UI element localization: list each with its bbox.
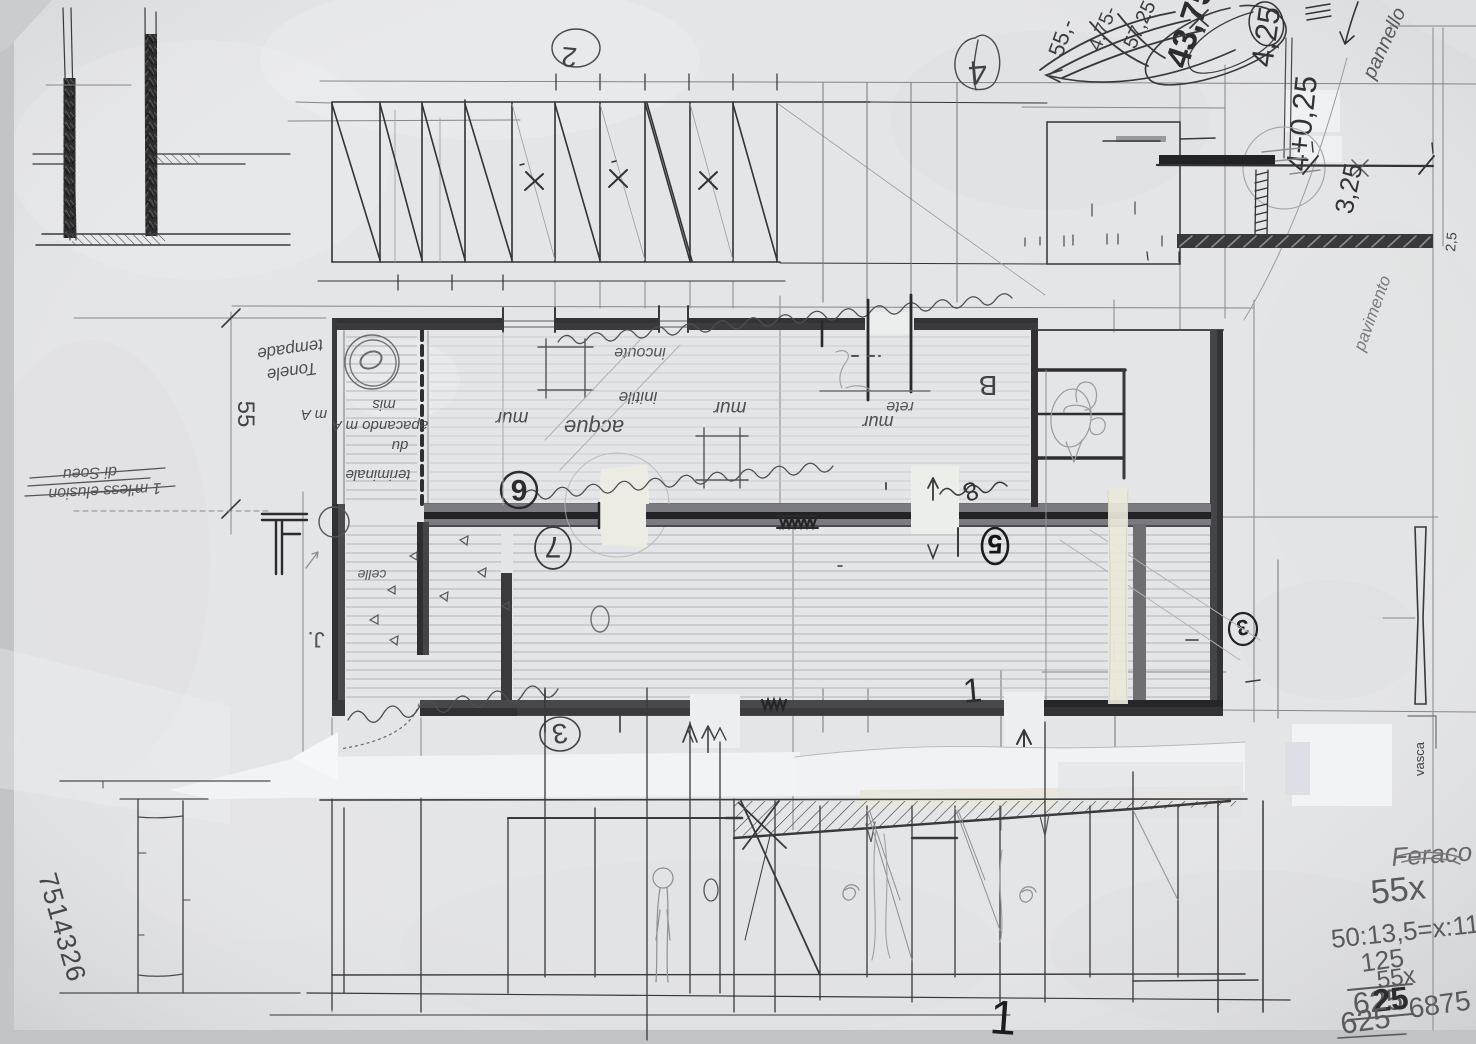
svg-text:6: 6: [511, 473, 528, 506]
svg-text:55: 55: [232, 401, 259, 428]
svg-text:acque: acque: [564, 415, 624, 440]
svg-text:celle: celle: [357, 567, 386, 583]
svg-text:mur: mur: [713, 397, 746, 418]
svg-text:4: 4: [967, 52, 989, 92]
svg-text:B: B: [979, 370, 998, 401]
svg-text:2: 2: [560, 41, 578, 73]
svg-text:1: 1: [988, 991, 1018, 1044]
svg-text:55x: 55x: [1369, 868, 1427, 912]
svg-text:mur: mur: [495, 407, 528, 428]
svg-text:5: 5: [987, 529, 1002, 559]
svg-text:initile: initile: [619, 388, 658, 407]
svg-text:du: du: [391, 437, 408, 454]
svg-text:apacando m A: apacando m A: [332, 417, 428, 434]
svg-text:rete: rete: [886, 398, 914, 415]
svg-text:m A: m A: [301, 406, 327, 423]
svg-text:1: 1: [961, 671, 983, 711]
svg-text:teriminale: teriminale: [345, 466, 410, 483]
svg-text:7: 7: [545, 530, 562, 563]
svg-text:2,5: 2,5: [1442, 231, 1460, 252]
svg-text:mis: mis: [372, 396, 396, 413]
svg-text:vasca: vasca: [1412, 741, 1427, 776]
svg-text:J.: J.: [307, 627, 324, 652]
